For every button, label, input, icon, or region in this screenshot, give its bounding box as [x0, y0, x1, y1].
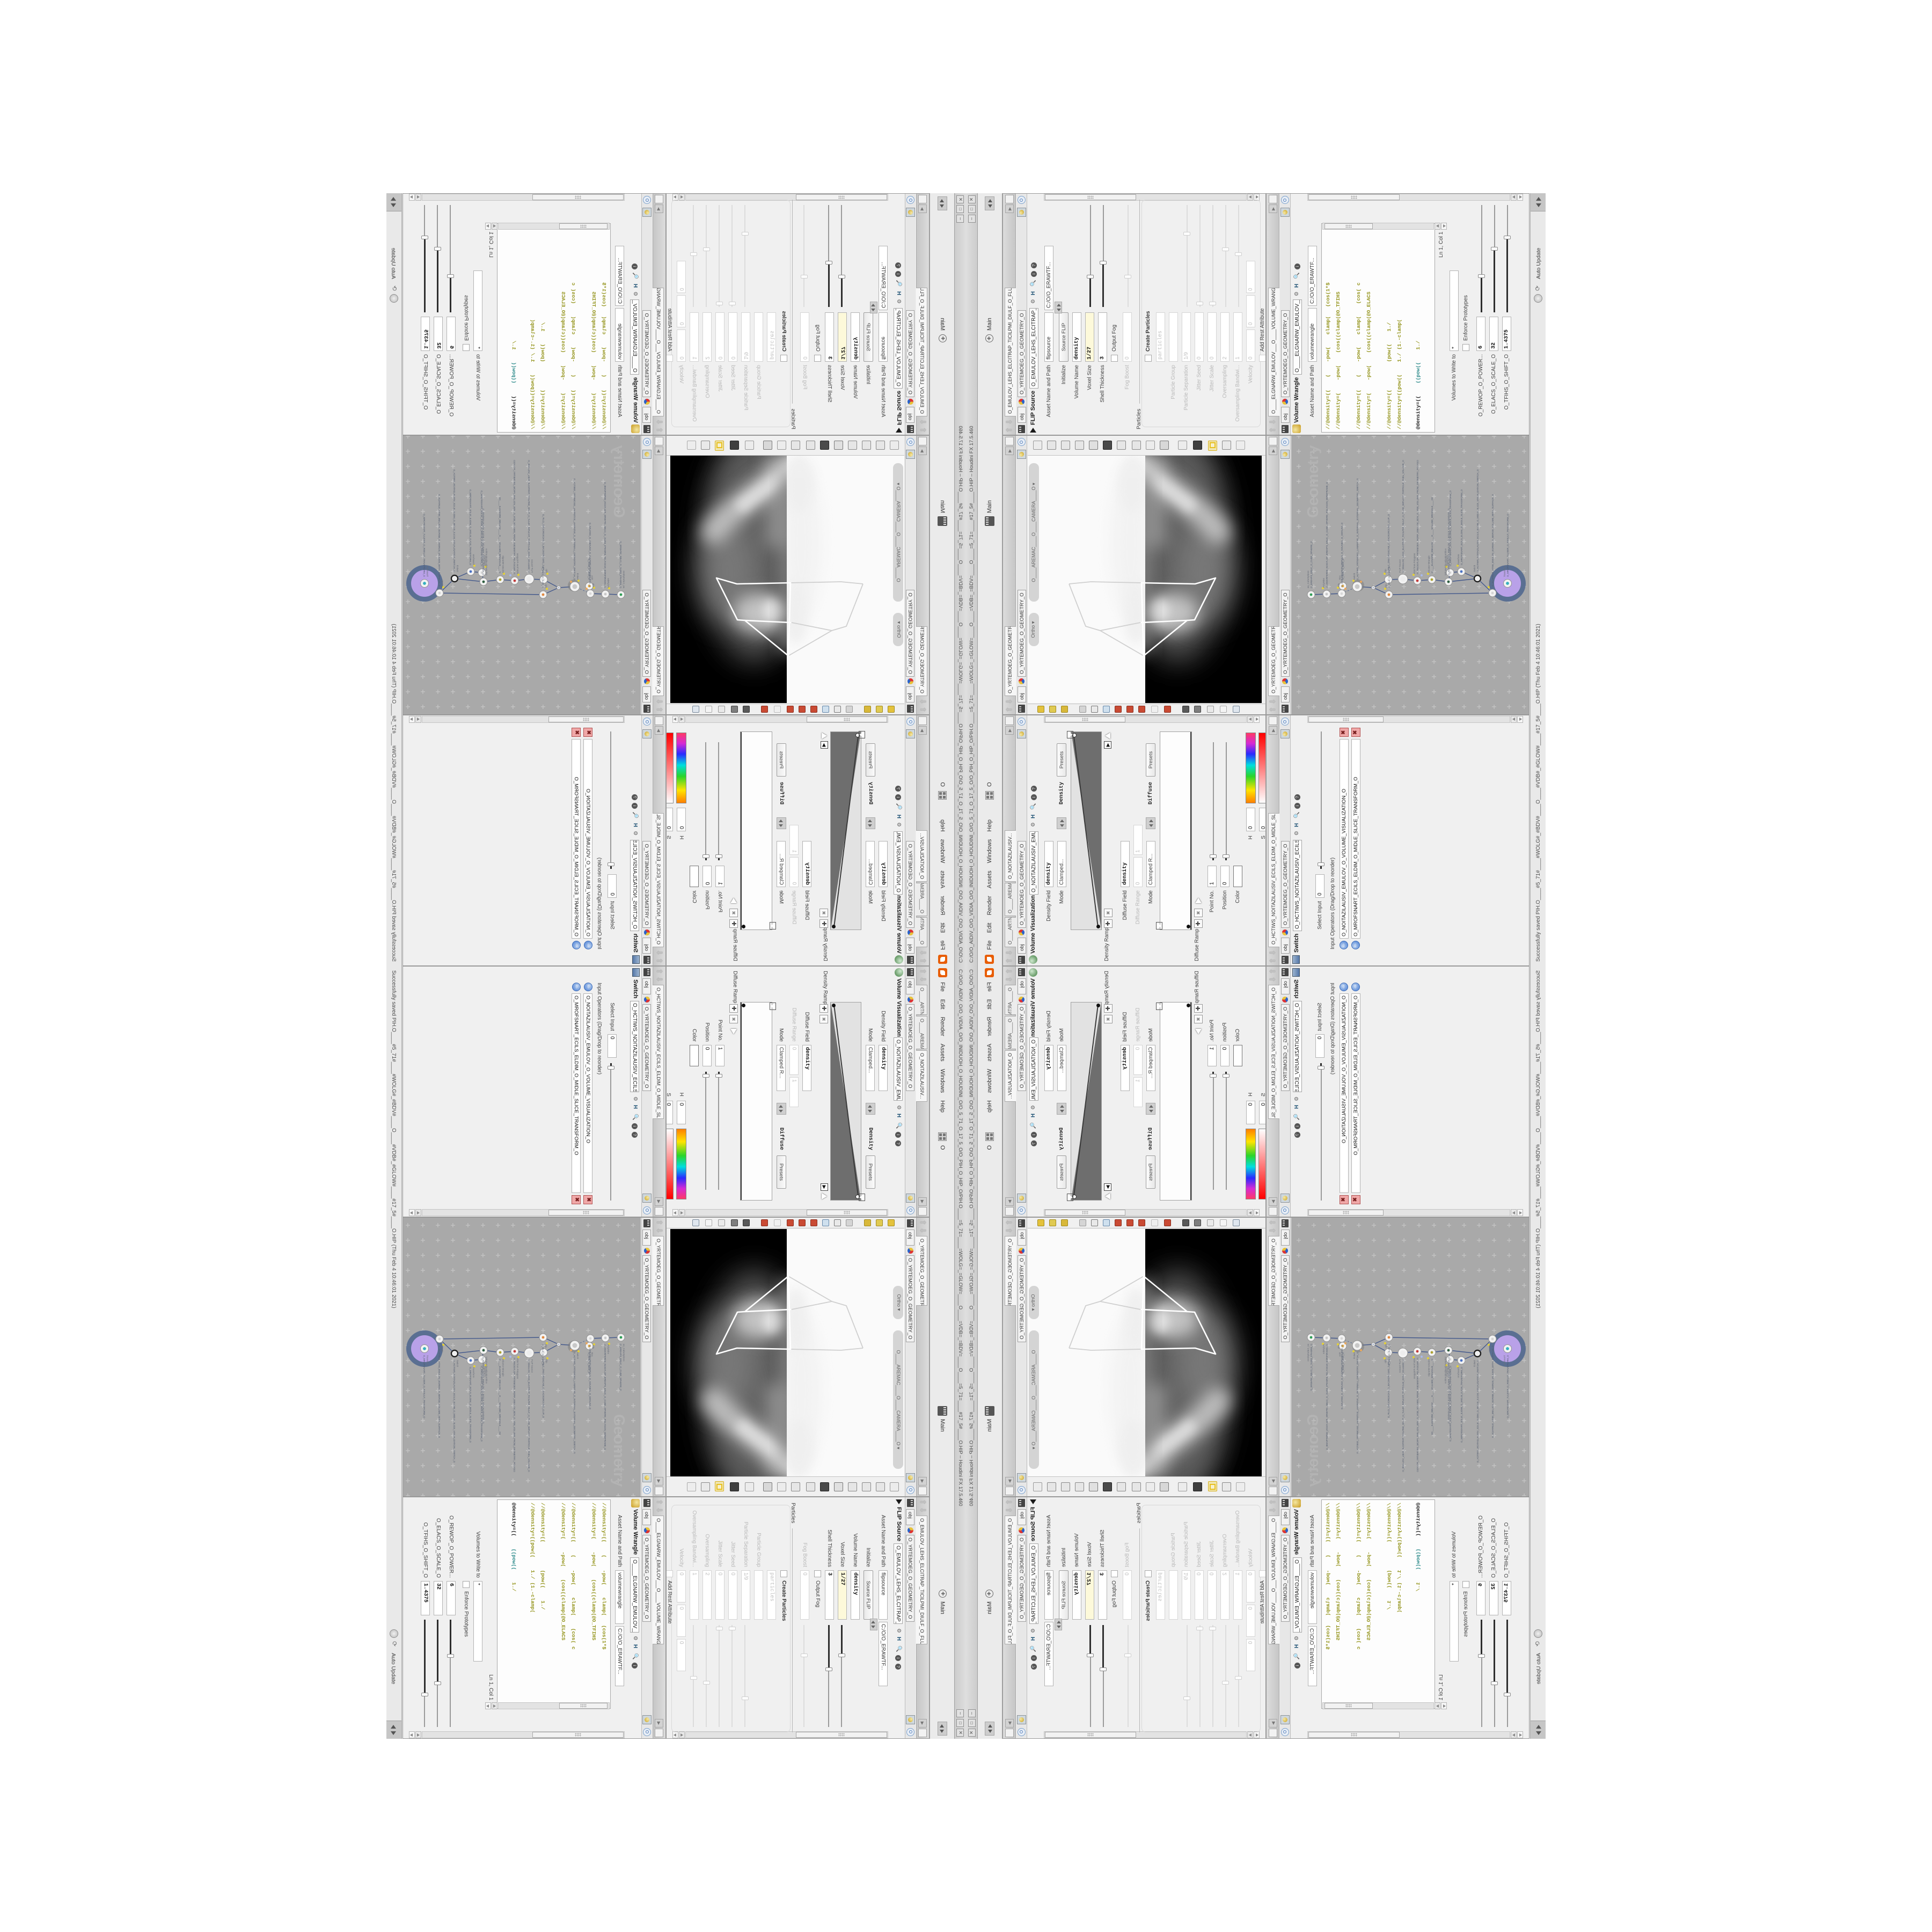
svg-text:O_EREHPS_EBUC_O_CUBE_SPHERE_O: O_EREHPS_EBUC_O_CUBE_SPHERE_O	[619, 541, 622, 588]
svg-text:Transform: Transform	[484, 1366, 486, 1377]
svg-text:Box: Box	[1338, 1352, 1341, 1357]
svg-text:Geometry: Geometry	[1305, 1414, 1322, 1487]
svg-text:VDB from Polygons: VDB from Polygons	[1413, 553, 1416, 574]
svg-text:FLIP Source: FLIP Source	[1399, 559, 1401, 573]
svg-text:O_EMARFERIW_NOGYLOP_EREHPS_EBU: O_EMARFERIW_NOGYLOP_EREHPS_EBUC_O_CUBE_S…	[1326, 1344, 1328, 1450]
svg-text:O_SNOGYLOP_YRTEMOEG_MORF_EMULO: O_SNOGYLOP_YRTEMOEG_MORF_EMULOV_BDV_O_VD…	[513, 460, 516, 574]
svg-text:Clip: Clip	[1385, 584, 1387, 588]
svg-text:Clip: Clip	[545, 1359, 548, 1363]
svg-text:O_HCTIWS_YRTEMOEG_LANRETXE_O_I: O_HCTIWS_YRTEMOEG_LANRETXE_O_INTERNAL_EX…	[573, 478, 576, 580]
svg-text:File: File	[1337, 1345, 1340, 1349]
svg-text:Merge: Merge	[441, 1345, 444, 1352]
svg-text:Volume Wrangle: Volume Wrangle	[502, 1359, 504, 1377]
svg-text:O_EMARFERIW_NOGYLOP_EREHPS_EBU: O_EMARFERIW_NOGYLOP_EREHPS_EBUC_O_CUBE_S…	[604, 482, 606, 588]
svg-text:Transform: Transform	[484, 555, 486, 566]
svg-text:Clip: Clip	[545, 1344, 547, 1348]
svg-text:Box: Box	[1338, 575, 1341, 580]
svg-text:O_SNOGYLOP_YRTEMOEG_MORF_EMULO: O_SNOGYLOP_YRTEMOEG_MORF_EMULOV_BDV_O_VD…	[513, 1358, 516, 1472]
svg-text:VDB from Polygons: VDB from Polygons	[1413, 1358, 1416, 1379]
svg-text:O_MROFSNART_ECILS_ELDIM_O_MIDL: O_MROFSNART_ECILS_ELDIM_O_MIDLE_SLICE_TR…	[1449, 1366, 1452, 1441]
svg-text:O_EREHPS_EBUC_O_CUBE_SPHERE_O: O_EREHPS_EBUC_O_CUBE_SPHERE_O	[1310, 1344, 1313, 1391]
svg-text:O_EMULOV_LEHS_ELCITRAP_TICILPM: O_EMULOV_LEHS_ELCITRAP_TICILPMI_DIULF_O_…	[528, 460, 530, 573]
svg-text:Transform: Transform	[1503, 566, 1506, 577]
svg-text:O_PILC_O_CLIP_O: O_PILC_O_CLIP_O	[541, 1344, 544, 1366]
svg-text:O_XOB_O_BOX_O: O_XOB_O_BOX_O	[1342, 1352, 1344, 1374]
svg-text:O_MROFSNART_ECILS_ELDIM_O_MIDL: O_MROFSNART_ECILS_ELDIM_O_MIDLE_SLICE_TR…	[469, 1367, 472, 1443]
svg-text:Volume Wrangle: Volume Wrangle	[1428, 1359, 1430, 1377]
svg-text:O_PILC_DNUORGKCAB_O_BACKGROUND: O_PILC_DNUORGKCAB_O_BACKGROUND_CLIP_O	[1387, 1359, 1390, 1418]
svg-text:Clip: Clip	[1384, 569, 1387, 573]
svg-text:O_XOB_O_BOX_O: O_XOB_O_BOX_O	[1342, 558, 1344, 580]
svg-text:FLIP Source: FLIP Source	[1399, 1359, 1401, 1373]
svg-text:File: File	[592, 583, 595, 587]
svg-text:File: File	[592, 1345, 595, 1349]
svg-text:O____ELGNARW_EMULOV____O____VO: O____ELGNARW_EMULOV____O____VOLUME_WRANG…	[499, 497, 501, 573]
svg-text:Transform: Transform	[472, 554, 475, 565]
svg-text:O_EREHPS_EBUC_O_CUBE_SPHERE_O: O_EREHPS_EBUC_O_CUBE_SPHERE_O	[1310, 541, 1313, 588]
svg-text:O_HCTIWS_NOITAZILAUSIV_ECILS_E: O_HCTIWS_NOITAZILAUSIV_ECILS_ELDIM_O_MID…	[453, 469, 456, 572]
svg-text:O_EMULOV_LEHS_ELCITRAP_TICILPM: O_EMULOV_LEHS_ELCITRAP_TICILPMI_DIULF_O_…	[1402, 460, 1404, 573]
svg-text:O_HCTIWS_NOITAZILAUSIV_ECILS_E: O_HCTIWS_NOITAZILAUSIV_ECILS_ELDIM_O_MID…	[453, 1360, 456, 1463]
svg-text:O_PILC_O_CLIP_O: O_PILC_O_CLIP_O	[541, 566, 544, 588]
svg-text:O_PILC_O_CLIP_O: O_PILC_O_CLIP_O	[1388, 566, 1391, 588]
svg-text:O_EREHPS_EBUC_O_CUBE_SPHERE_O: O_EREHPS_EBUC_O_CUBE_SPHERE_O	[619, 1344, 622, 1391]
svg-text:Clip: Clip	[545, 569, 548, 573]
svg-text:O_EMARFERIW_NOGYLOP_EREHPS_EBU: O_EMARFERIW_NOGYLOP_EREHPS_EBUC_O_CUBE_S…	[1326, 482, 1328, 588]
svg-text:Volume Wrangle: Volume Wrangle	[502, 555, 504, 573]
svg-text:O_PILC_O_CLIP_O: O_PILC_O_CLIP_O	[1388, 1344, 1391, 1366]
svg-text:Clip: Clip	[1385, 1344, 1387, 1348]
svg-text:Switch: Switch	[456, 1360, 459, 1367]
svg-text:Switch: Switch	[576, 1352, 579, 1359]
svg-text:O_ECAFRUS_HTIW_EMULOV_EGREM_O_: O_ECAFRUS_HTIW_EMULOV_EGREM_O_MERGE_VOLU…	[438, 494, 441, 587]
svg-text:O_HCTIWS_YRTEMOEG_LANRETXE_O_I: O_HCTIWS_YRTEMOEG_LANRETXE_O_INTERNAL_EX…	[1356, 478, 1359, 580]
svg-text:Clip: Clip	[1384, 1359, 1387, 1363]
svg-text:PolyWire: PolyWire	[607, 1344, 610, 1354]
svg-text:O_HCTIWS_YRTEMOEG_LANRETXE_O_I: O_HCTIWS_YRTEMOEG_LANRETXE_O_INTERNAL_EX…	[573, 1352, 576, 1454]
svg-text:Transform: Transform	[1446, 1366, 1448, 1377]
svg-text:O_MROFSNART_TLUSER_O_RESULT_TR: O_MROFSNART_TLUSER_O_RESULT_TRANSFORM_O	[1506, 514, 1509, 577]
svg-text:Switch: Switch	[1353, 1352, 1356, 1359]
svg-text:O_MROFSNART_ECILS_ELDIM_O_MIDL: O_MROFSNART_ECILS_ELDIM_O_MIDLE_SLICE_TR…	[480, 1366, 483, 1441]
svg-text:Geometry: Geometry	[610, 1414, 627, 1487]
svg-text:Transform: Transform	[1457, 1367, 1460, 1378]
svg-text:O_MROFSNART_ECILS_ELDIM_O_MIDL: O_MROFSNART_ECILS_ELDIM_O_MIDLE_SLICE_TR…	[480, 491, 483, 566]
svg-text:Transform: Transform	[472, 1367, 475, 1378]
svg-text:Geometry: Geometry	[1305, 445, 1322, 518]
svg-text:O_HCTIWS_YRTEMOEG_LANRETXE_O_I: O_HCTIWS_YRTEMOEG_LANRETXE_O_INTERNAL_EX…	[1356, 1352, 1359, 1454]
svg-text:O_HCTIWS_NOITAZILAUSIV_ECILS_E: O_HCTIWS_NOITAZILAUSIV_ECILS_ELDIM_O_MID…	[1476, 469, 1479, 572]
svg-text:Switch: Switch	[1473, 565, 1476, 572]
svg-text:Merge: Merge	[441, 580, 444, 587]
svg-text:O_SNOGYLOP_YRTEMOEG_MORF_EMULO: O_SNOGYLOP_YRTEMOEG_MORF_EMULOV_BDV_O_VD…	[1416, 460, 1419, 574]
svg-text:O_EMULOV_LEHS_ELCITRAP_TICILPM: O_EMULOV_LEHS_ELCITRAP_TICILPMI_DIULF_O_…	[1402, 1359, 1404, 1472]
svg-text:Switch: Switch	[576, 573, 579, 580]
svg-text:Merge: Merge	[1488, 580, 1491, 587]
svg-text:O_MROFSNART_ECILS_ELDIM_O_MIDL: O_MROFSNART_ECILS_ELDIM_O_MIDLE_SLICE_TR…	[1449, 491, 1452, 566]
svg-text:Transform: Transform	[1457, 554, 1460, 565]
svg-text:O_ECAFRUS_HTIW_EMULOV_EGREM_O_: O_ECAFRUS_HTIW_EMULOV_EGREM_O_MERGE_VOLU…	[1491, 1345, 1494, 1438]
svg-text:VDB from Polygons: VDB from Polygons	[516, 553, 519, 574]
svg-text:O_HCTIWS_NOITAZILAUSIV_ECILS_E: O_HCTIWS_NOITAZILAUSIV_ECILS_ELDIM_O_MID…	[1476, 1360, 1479, 1463]
svg-text:O____ELGNARW_EMULOV____O____VO: O____ELGNARW_EMULOV____O____VOLUME_WRANG…	[1431, 497, 1433, 573]
svg-text:an_CubeSphere: an_CubeSphere	[1307, 570, 1309, 588]
svg-text:O_ECAFRUS_HTIW_EMULOV_EGREM_O_: O_ECAFRUS_HTIW_EMULOV_EGREM_O_MERGE_VOLU…	[438, 1345, 441, 1438]
svg-text:FLIP Source: FLIP Source	[531, 1359, 533, 1373]
svg-text:O_MROFSNART_ECILS_ELDIM_O_MIDL: O_MROFSNART_ECILS_ELDIM_O_MIDLE_SLICE_TR…	[1460, 1367, 1463, 1443]
svg-text:Transform: Transform	[426, 1355, 429, 1366]
svg-text:an_CubeSphere: an_CubeSphere	[1307, 1344, 1309, 1362]
svg-text:Switch: Switch	[1353, 573, 1356, 580]
svg-text:Box: Box	[591, 1352, 594, 1357]
svg-text:FLIP Source: FLIP Source	[531, 559, 533, 573]
svg-text:O_MROFSNART_ECILS_ELDIM_O_MIDL: O_MROFSNART_ECILS_ELDIM_O_MIDLE_SLICE_TR…	[469, 489, 472, 565]
svg-text:Merge: Merge	[1488, 1345, 1491, 1352]
svg-text:Transform: Transform	[1503, 1355, 1506, 1366]
svg-text:Transform: Transform	[1446, 555, 1448, 566]
svg-text:O_ECAFRUS_HTIW_EMULOV_EGREM_O_: O_ECAFRUS_HTIW_EMULOV_EGREM_O_MERGE_VOLU…	[1491, 494, 1494, 587]
svg-text:O_MROFSNART_TLUSER_O_RESULT_TR: O_MROFSNART_TLUSER_O_RESULT_TRANSFORM_O	[423, 1355, 426, 1418]
svg-text:VDB from Polygons: VDB from Polygons	[516, 1358, 519, 1379]
svg-text:PolyWire: PolyWire	[1322, 578, 1325, 588]
svg-text:Switch: Switch	[456, 565, 459, 572]
svg-text:File: File	[1337, 583, 1340, 587]
svg-text:O_EMARFERIW_NOGYLOP_EREHPS_EBU: O_EMARFERIW_NOGYLOP_EREHPS_EBUC_O_CUBE_S…	[604, 1344, 606, 1450]
svg-text:O_PILC_DNUORGKCAB_O_BACKGROUND: O_PILC_DNUORGKCAB_O_BACKGROUND_CLIP_O	[542, 1359, 545, 1418]
svg-text:Geometry: Geometry	[610, 445, 627, 518]
svg-text:Clip: Clip	[545, 584, 547, 588]
svg-text:Volume Wrangle: Volume Wrangle	[1428, 555, 1430, 573]
svg-text:PolyWire: PolyWire	[1322, 1344, 1325, 1354]
svg-text:O____ELGNARW_EMULOV____O____VO: O____ELGNARW_EMULOV____O____VOLUME_WRANG…	[1431, 1359, 1433, 1435]
svg-text:PolyWire: PolyWire	[607, 578, 610, 588]
svg-text:O_XOB_O_BOX_O: O_XOB_O_BOX_O	[588, 558, 590, 580]
svg-text:an_CubeSphere: an_CubeSphere	[623, 1344, 625, 1362]
svg-text:O_EMULOV_LEHS_ELCITRAP_TICILPM: O_EMULOV_LEHS_ELCITRAP_TICILPMI_DIULF_O_…	[528, 1359, 530, 1472]
svg-text:O_MROFSNART_ECILS_ELDIM_O_MIDL: O_MROFSNART_ECILS_ELDIM_O_MIDLE_SLICE_TR…	[1460, 489, 1463, 565]
svg-text:O____ELGNARW_EMULOV____O____VO: O____ELGNARW_EMULOV____O____VOLUME_WRANG…	[499, 1359, 501, 1435]
svg-text:O_MROFSNART_TLUSER_O_RESULT_TR: O_MROFSNART_TLUSER_O_RESULT_TRANSFORM_O	[1506, 1355, 1509, 1418]
svg-text:Box: Box	[591, 575, 594, 580]
svg-text:Switch: Switch	[1473, 1360, 1476, 1367]
svg-text:an_CubeSphere: an_CubeSphere	[623, 570, 625, 588]
svg-text:O_PILC_DNUORGKCAB_O_BACKGROUND: O_PILC_DNUORGKCAB_O_BACKGROUND_CLIP_O	[1387, 514, 1390, 573]
svg-text:O_MROFSNART_TLUSER_O_RESULT_TR: O_MROFSNART_TLUSER_O_RESULT_TRANSFORM_O	[423, 514, 426, 577]
svg-text:O_SNOGYLOP_YRTEMOEG_MORF_EMULO: O_SNOGYLOP_YRTEMOEG_MORF_EMULOV_BDV_O_VD…	[1416, 1358, 1419, 1472]
svg-text:Transform: Transform	[426, 566, 429, 577]
svg-text:O_PILC_DNUORGKCAB_O_BACKGROUND: O_PILC_DNUORGKCAB_O_BACKGROUND_CLIP_O	[542, 514, 545, 573]
svg-text:O_XOB_O_BOX_O: O_XOB_O_BOX_O	[588, 1352, 590, 1374]
